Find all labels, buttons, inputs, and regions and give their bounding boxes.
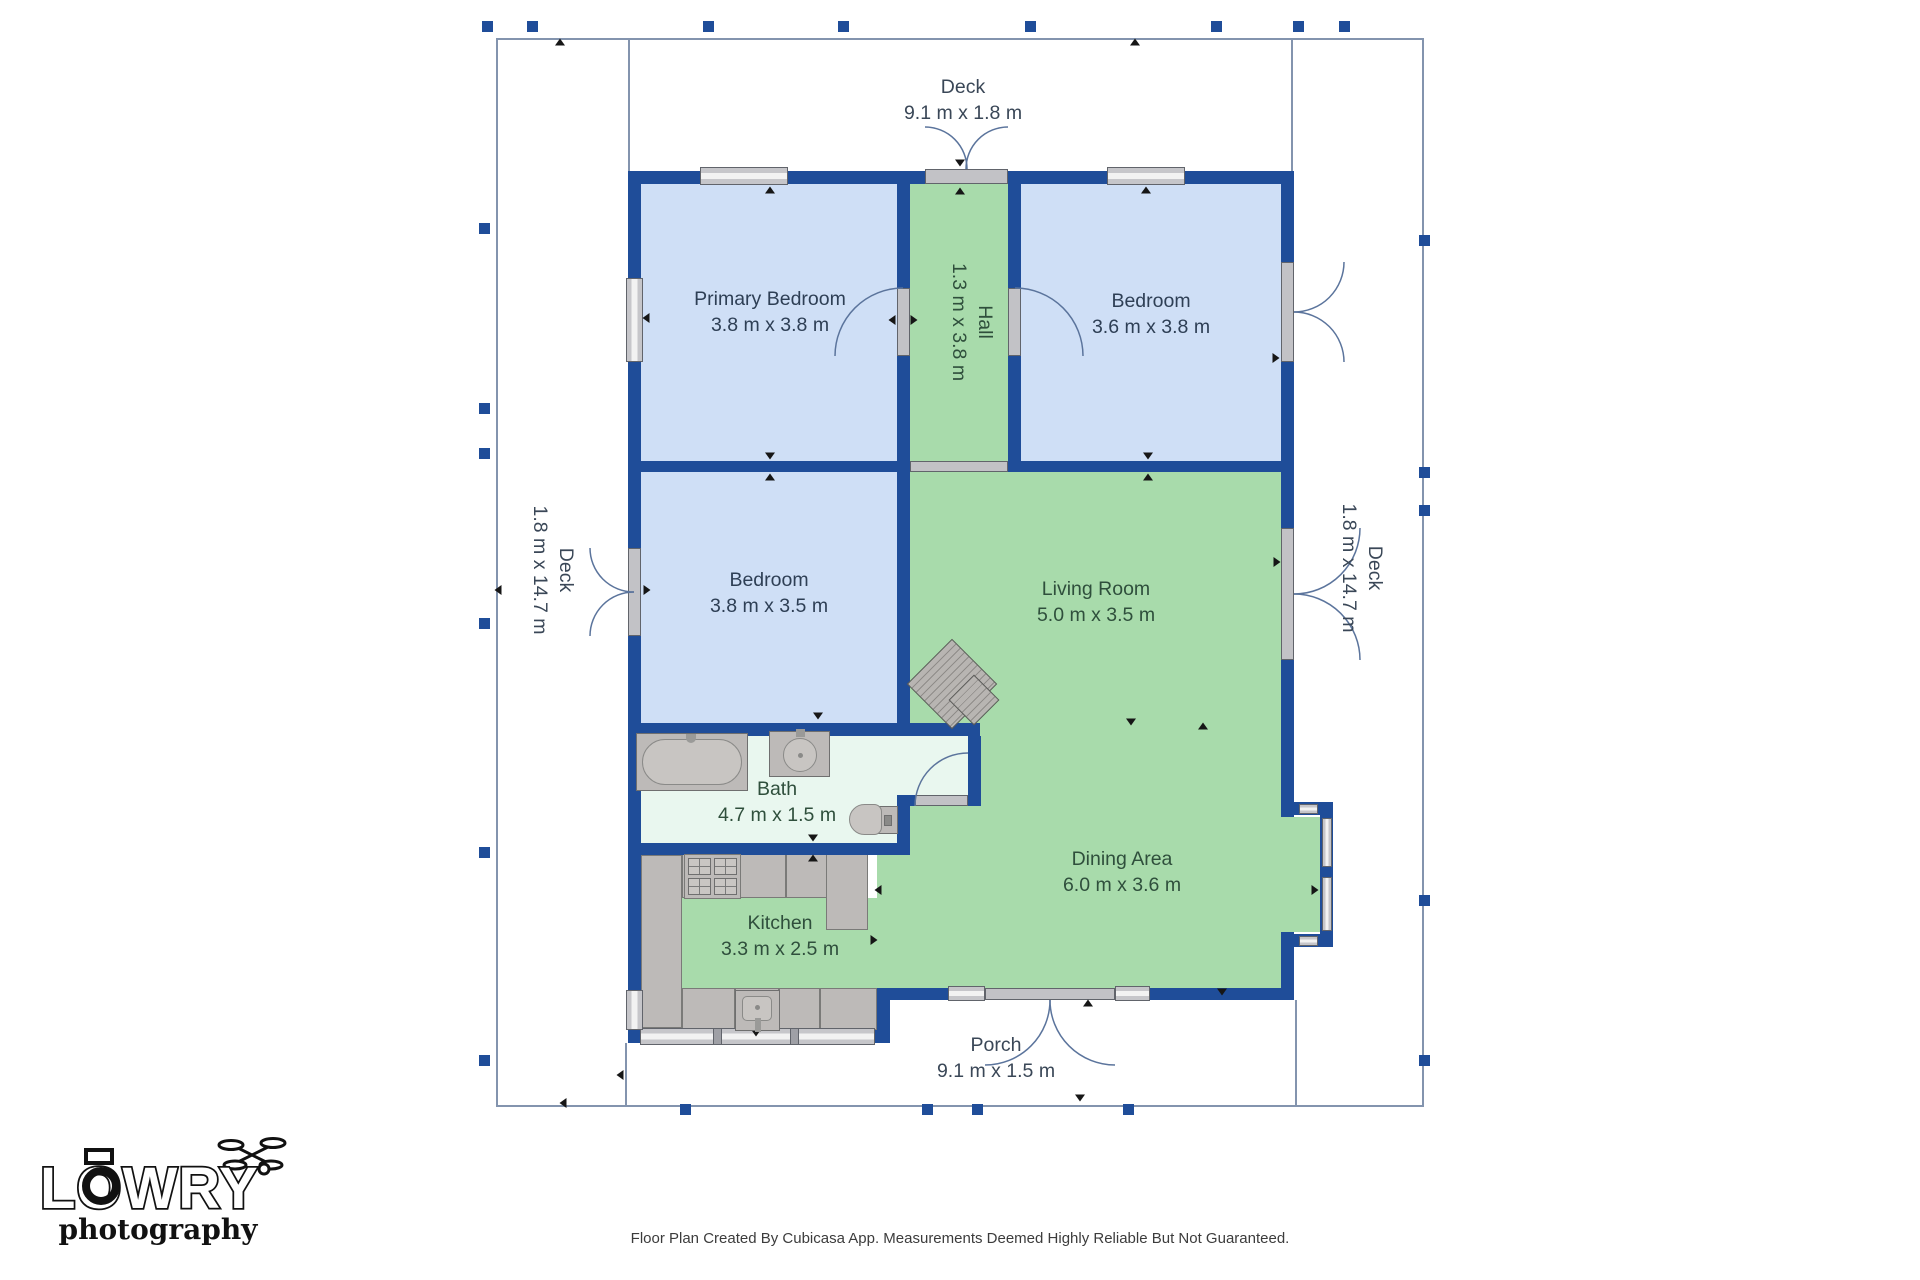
measure-arrow-icon bbox=[1198, 723, 1208, 730]
window bbox=[1115, 986, 1150, 1001]
room-name: Bath bbox=[718, 776, 836, 802]
deck-boundary-line bbox=[496, 38, 498, 1107]
window bbox=[626, 990, 643, 1030]
room-name: Kitchen bbox=[721, 910, 839, 936]
room-name: Living Room bbox=[1037, 576, 1155, 602]
kitchen-faucet-icon bbox=[755, 1018, 761, 1032]
room-label-bedroom-middle: Bedroom 3.8 m x 3.5 m bbox=[710, 567, 828, 619]
toilet-flush-button bbox=[884, 815, 892, 826]
door-threshold bbox=[910, 461, 1008, 472]
window-mullion bbox=[790, 1028, 799, 1045]
room-dims: 1.8 m x 14.7 m bbox=[527, 506, 553, 635]
deck-post-marker bbox=[1025, 21, 1036, 32]
kitchen-passage-floor bbox=[877, 855, 910, 988]
deck-post-marker bbox=[1419, 467, 1430, 478]
room-name: Bedroom bbox=[710, 567, 828, 593]
measure-arrow-icon bbox=[1130, 39, 1140, 46]
measure-arrow-icon bbox=[911, 315, 918, 325]
measure-arrow-icon bbox=[765, 187, 775, 194]
deck-post-marker bbox=[479, 1055, 490, 1066]
bath-sink bbox=[769, 731, 830, 777]
stove bbox=[684, 854, 741, 899]
room-name: Dining Area bbox=[1063, 846, 1181, 872]
bay-window-floor bbox=[1281, 817, 1320, 932]
measure-arrow-icon bbox=[871, 935, 878, 945]
deck-post-marker bbox=[838, 21, 849, 32]
room-label-bedroom-top-right: Bedroom 3.6 m x 3.8 m bbox=[1092, 288, 1210, 340]
kitchen-counter bbox=[779, 988, 820, 1030]
measure-arrow-icon bbox=[1075, 1095, 1085, 1102]
measure-arrow-icon bbox=[955, 188, 965, 195]
measure-arrow-icon bbox=[1143, 453, 1153, 460]
door-threshold bbox=[1008, 288, 1021, 356]
measure-arrow-icon bbox=[1143, 474, 1153, 481]
deck-post-marker bbox=[479, 403, 490, 414]
room-label-dining-area: Dining Area 6.0 m x 3.6 m bbox=[1063, 846, 1181, 898]
room-dims: 4.7 m x 1.5 m bbox=[718, 802, 836, 828]
room-name: Porch bbox=[937, 1032, 1055, 1058]
deck-post-marker bbox=[680, 1104, 691, 1115]
bath-sink-faucet-icon bbox=[796, 729, 805, 737]
deck-boundary-line bbox=[496, 1105, 1424, 1107]
door-threshold bbox=[1281, 528, 1294, 660]
measure-arrow-icon bbox=[643, 313, 650, 323]
measure-arrow-icon bbox=[1273, 353, 1280, 363]
deck-post-marker bbox=[479, 223, 490, 234]
disclaimer-text: Floor Plan Created By Cubicasa App. Meas… bbox=[0, 1230, 1920, 1247]
door-threshold bbox=[985, 988, 1115, 1000]
wall bbox=[1008, 461, 1294, 472]
window bbox=[1299, 804, 1318, 814]
deck-post-marker bbox=[1293, 21, 1304, 32]
room-label-primary-bedroom: Primary Bedroom 3.8 m x 3.8 m bbox=[694, 286, 846, 338]
wall bbox=[897, 472, 910, 736]
deck-post-marker bbox=[1211, 21, 1222, 32]
room-dims: 3.8 m x 3.8 m bbox=[694, 312, 846, 338]
logo-word: LOWRY bbox=[40, 1156, 259, 1221]
room-label-deck-top: Deck 9.1 m x 1.8 m bbox=[904, 74, 1022, 126]
room-name: Bedroom bbox=[1092, 288, 1210, 314]
room-name: Deck bbox=[1362, 504, 1388, 633]
window bbox=[1107, 167, 1185, 185]
measure-arrow-icon bbox=[1083, 1000, 1093, 1007]
measure-arrow-icon bbox=[1274, 557, 1281, 567]
room-label-bath: Bath 4.7 m x 1.5 m bbox=[718, 776, 836, 828]
measure-arrow-icon bbox=[813, 713, 823, 720]
toilet-bowl bbox=[849, 804, 882, 835]
window bbox=[1322, 818, 1332, 867]
measure-arrow-icon bbox=[955, 160, 965, 167]
deck-post-marker bbox=[1123, 1104, 1134, 1115]
burner-icon bbox=[688, 878, 711, 895]
room-name: Hall bbox=[972, 263, 998, 381]
room-dims: 3.3 m x 2.5 m bbox=[721, 936, 839, 962]
measure-arrow-icon bbox=[1141, 187, 1151, 194]
measure-arrow-icon bbox=[808, 835, 818, 842]
deck-post-marker bbox=[1419, 235, 1430, 246]
bath-sink-drain bbox=[798, 753, 803, 758]
room-name: Deck bbox=[904, 74, 1022, 100]
room-dims: 1.8 m x 14.7 m bbox=[1336, 504, 1362, 633]
measure-arrow-icon bbox=[495, 585, 502, 595]
door-threshold bbox=[915, 795, 968, 806]
window bbox=[1299, 936, 1318, 946]
deck-post-marker bbox=[703, 21, 714, 32]
kitchen-sink bbox=[735, 990, 780, 1031]
deck-post-marker bbox=[527, 21, 538, 32]
wall bbox=[968, 736, 981, 806]
deck-post-marker bbox=[972, 1104, 983, 1115]
room-dims: 3.6 m x 3.8 m bbox=[1092, 314, 1210, 340]
measure-arrow-icon bbox=[765, 474, 775, 481]
door-threshold bbox=[897, 288, 910, 356]
room-label-deck-left: Deck 1.8 m x 14.7 m bbox=[527, 506, 579, 635]
wall bbox=[628, 843, 910, 855]
measure-arrow-icon bbox=[875, 885, 882, 895]
measure-arrow-icon bbox=[555, 39, 565, 46]
deck-boundary-line bbox=[496, 38, 1424, 40]
deck-post-marker bbox=[1419, 895, 1430, 906]
door-threshold bbox=[1281, 262, 1294, 362]
measure-arrow-icon bbox=[808, 855, 818, 862]
measure-arrow-icon bbox=[1126, 719, 1136, 726]
room-dims: 3.8 m x 3.5 m bbox=[710, 593, 828, 619]
kitchen-sink-drain bbox=[755, 1005, 760, 1010]
door-threshold bbox=[925, 169, 1008, 184]
measure-arrow-icon bbox=[560, 1098, 567, 1108]
wall bbox=[628, 461, 910, 472]
door-threshold bbox=[628, 548, 641, 636]
kitchen-counter bbox=[820, 988, 877, 1030]
deck-post-marker bbox=[1339, 21, 1350, 32]
window bbox=[700, 167, 788, 185]
kitchen-counter bbox=[740, 852, 786, 898]
deck-boundary-line bbox=[1422, 38, 1424, 1107]
room-dims: 9.1 m x 1.5 m bbox=[937, 1058, 1055, 1084]
room-dims: 6.0 m x 3.6 m bbox=[1063, 872, 1181, 898]
measure-arrow-icon bbox=[765, 453, 775, 460]
measure-arrow-icon bbox=[644, 585, 651, 595]
room-name: Deck bbox=[553, 506, 579, 635]
measure-arrow-icon bbox=[889, 315, 896, 325]
kitchen-counter bbox=[682, 988, 735, 1030]
room-name: Primary Bedroom bbox=[694, 286, 846, 312]
deck-post-marker bbox=[482, 21, 493, 32]
measure-arrow-icon bbox=[1217, 989, 1227, 996]
deck-post-marker bbox=[1419, 1055, 1430, 1066]
burner-icon bbox=[688, 858, 711, 875]
deck-post-marker bbox=[479, 448, 490, 459]
deck-post-marker bbox=[479, 618, 490, 629]
window bbox=[1322, 877, 1332, 931]
room-dims: 5.0 m x 3.5 m bbox=[1037, 602, 1155, 628]
deck-post-marker bbox=[922, 1104, 933, 1115]
room-dims: 9.1 m x 1.8 m bbox=[904, 100, 1022, 126]
burner-icon bbox=[714, 878, 737, 895]
room-label-hall: Hall 1.3 m x 3.8 m bbox=[946, 263, 998, 381]
measure-arrow-icon bbox=[1312, 885, 1319, 895]
measure-arrow-icon bbox=[617, 1070, 624, 1080]
deck-boundary-line bbox=[628, 38, 630, 171]
room-dims: 1.3 m x 3.8 m bbox=[946, 263, 972, 381]
floor-plan: Primary Bedroom 3.8 m x 3.8 m Bedroom 3.… bbox=[0, 0, 1920, 1280]
deck-post-marker bbox=[479, 847, 490, 858]
room-label-kitchen: Kitchen 3.3 m x 2.5 m bbox=[721, 910, 839, 962]
window bbox=[626, 278, 643, 362]
kitchen-counter bbox=[641, 855, 682, 1028]
deck-post-marker bbox=[1419, 505, 1430, 516]
room-label-porch: Porch 9.1 m x 1.5 m bbox=[937, 1032, 1055, 1084]
window-mullion bbox=[713, 1028, 722, 1045]
room-label-living-room: Living Room 5.0 m x 3.5 m bbox=[1037, 576, 1155, 628]
window bbox=[948, 986, 985, 1001]
deck-boundary-line bbox=[1295, 1000, 1297, 1107]
deck-boundary-line bbox=[625, 1043, 627, 1107]
room-label-deck-right: Deck 1.8 m x 14.7 m bbox=[1336, 504, 1388, 633]
deck-boundary-line bbox=[1291, 38, 1293, 171]
burner-icon bbox=[714, 858, 737, 875]
